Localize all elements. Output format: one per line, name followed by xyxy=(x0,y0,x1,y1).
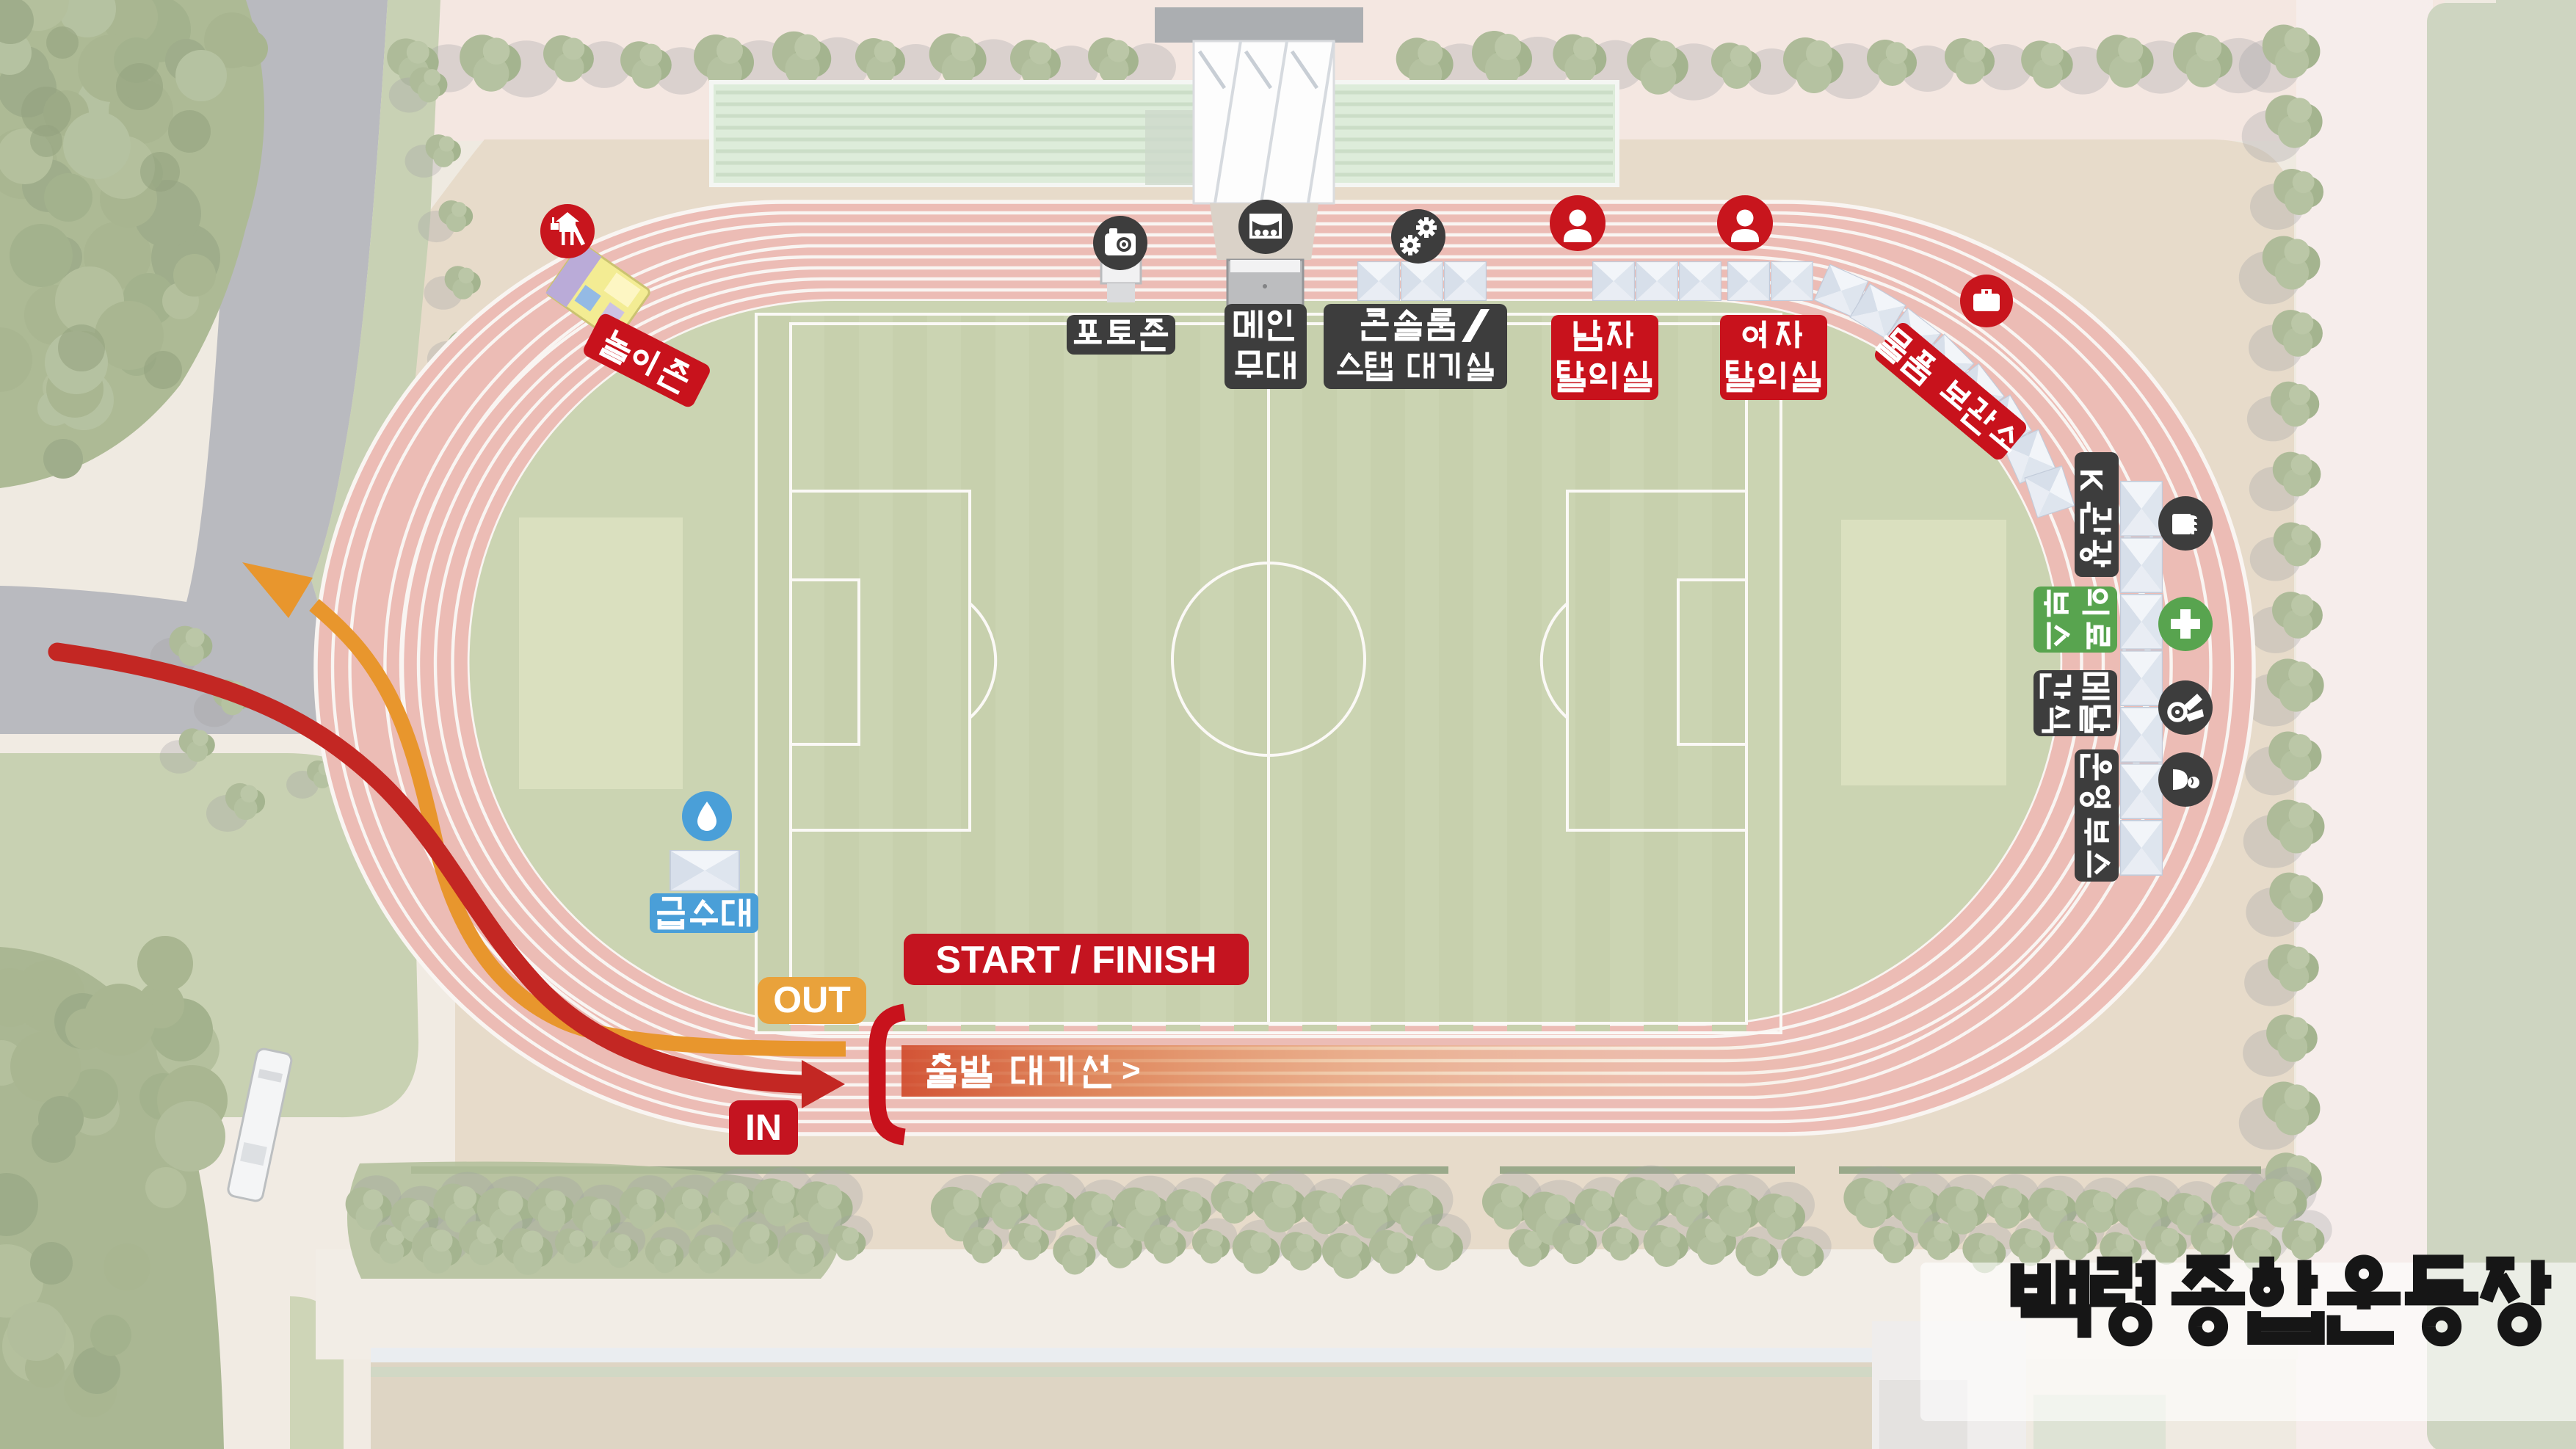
svg-text:OUT: OUT xyxy=(773,979,851,1020)
svg-text:>: > xyxy=(1122,1053,1141,1089)
svg-text:K -: K - xyxy=(2073,468,2109,512)
svg-text:START / FINISH: START / FINISH xyxy=(935,939,1216,981)
svg-text:IN: IN xyxy=(745,1107,782,1148)
